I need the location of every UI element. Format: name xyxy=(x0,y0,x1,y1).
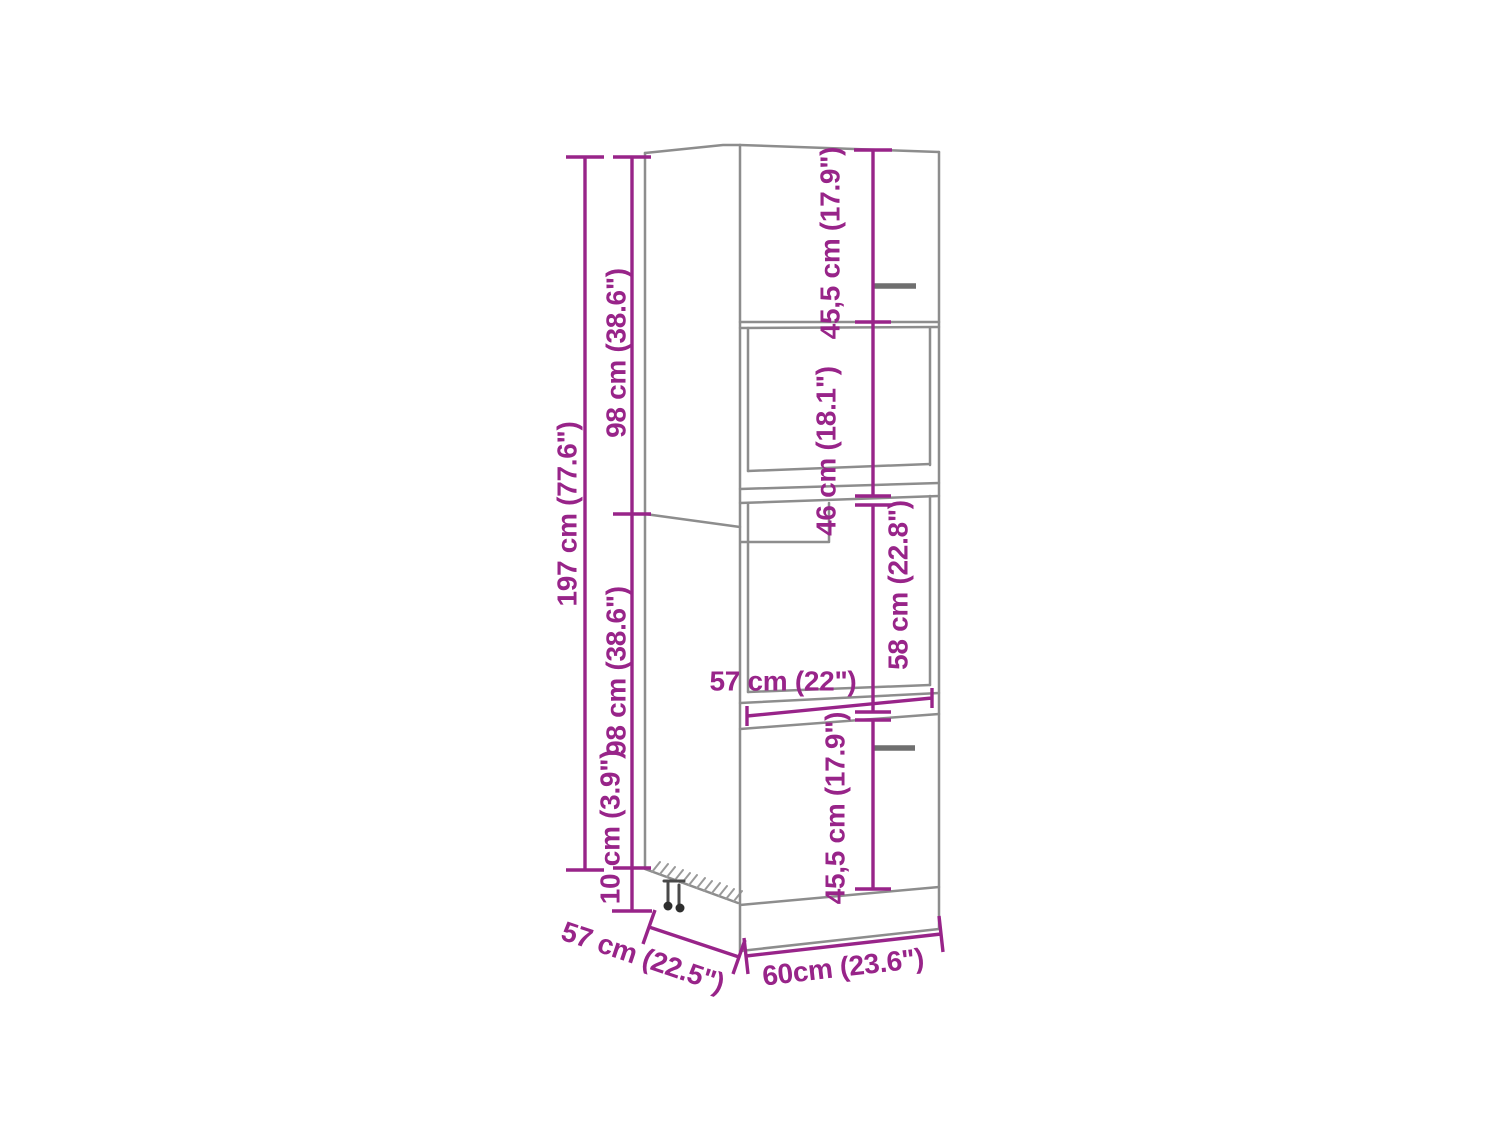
label-bottom-door-height: 45,5 cm (17.9") xyxy=(820,712,851,904)
side-panel xyxy=(645,145,742,903)
side-panel-seam xyxy=(645,514,740,527)
dim-top-door xyxy=(854,150,892,322)
label-niche-inner-width: 57 cm (22") xyxy=(710,666,857,697)
diagram-canvas: 197 cm (77.6") 98 cm (38.6") 98 cm (38.6… xyxy=(0,0,1500,1125)
adjustable-foot xyxy=(664,881,685,913)
label-total-height: 197 cm (77.6") xyxy=(552,422,583,607)
foot-pad-right xyxy=(676,904,685,913)
foot-pad-left xyxy=(664,902,673,911)
label-plinth-height: 10 cm (3.9") xyxy=(595,750,626,904)
label-depth: 57 cm (22.5") xyxy=(558,915,729,998)
label-oven-niche-height: 58 cm (22.8") xyxy=(883,500,914,670)
cabinet-dimension-diagram: 197 cm (77.6") 98 cm (38.6") 98 cm (38.6… xyxy=(0,0,1500,1125)
foot-legs xyxy=(664,881,684,905)
side-panel-bottom-edge xyxy=(645,869,738,903)
label-top-door-height: 45,5 cm (17.9") xyxy=(815,147,846,339)
label-upper-module-height: 98 cm (38.6") xyxy=(601,268,632,438)
dimension-labels: 197 cm (77.6") 98 cm (38.6") 98 cm (38.6… xyxy=(552,147,926,999)
label-middle-niche-height: 46 cm (18.1") xyxy=(811,366,842,536)
label-lower-module-height: 98 cm (38.6") xyxy=(601,586,632,756)
side-panel-top-edge xyxy=(645,145,740,153)
dim-middle-niche xyxy=(855,322,891,496)
label-width: 60cm (23.6") xyxy=(761,942,926,991)
